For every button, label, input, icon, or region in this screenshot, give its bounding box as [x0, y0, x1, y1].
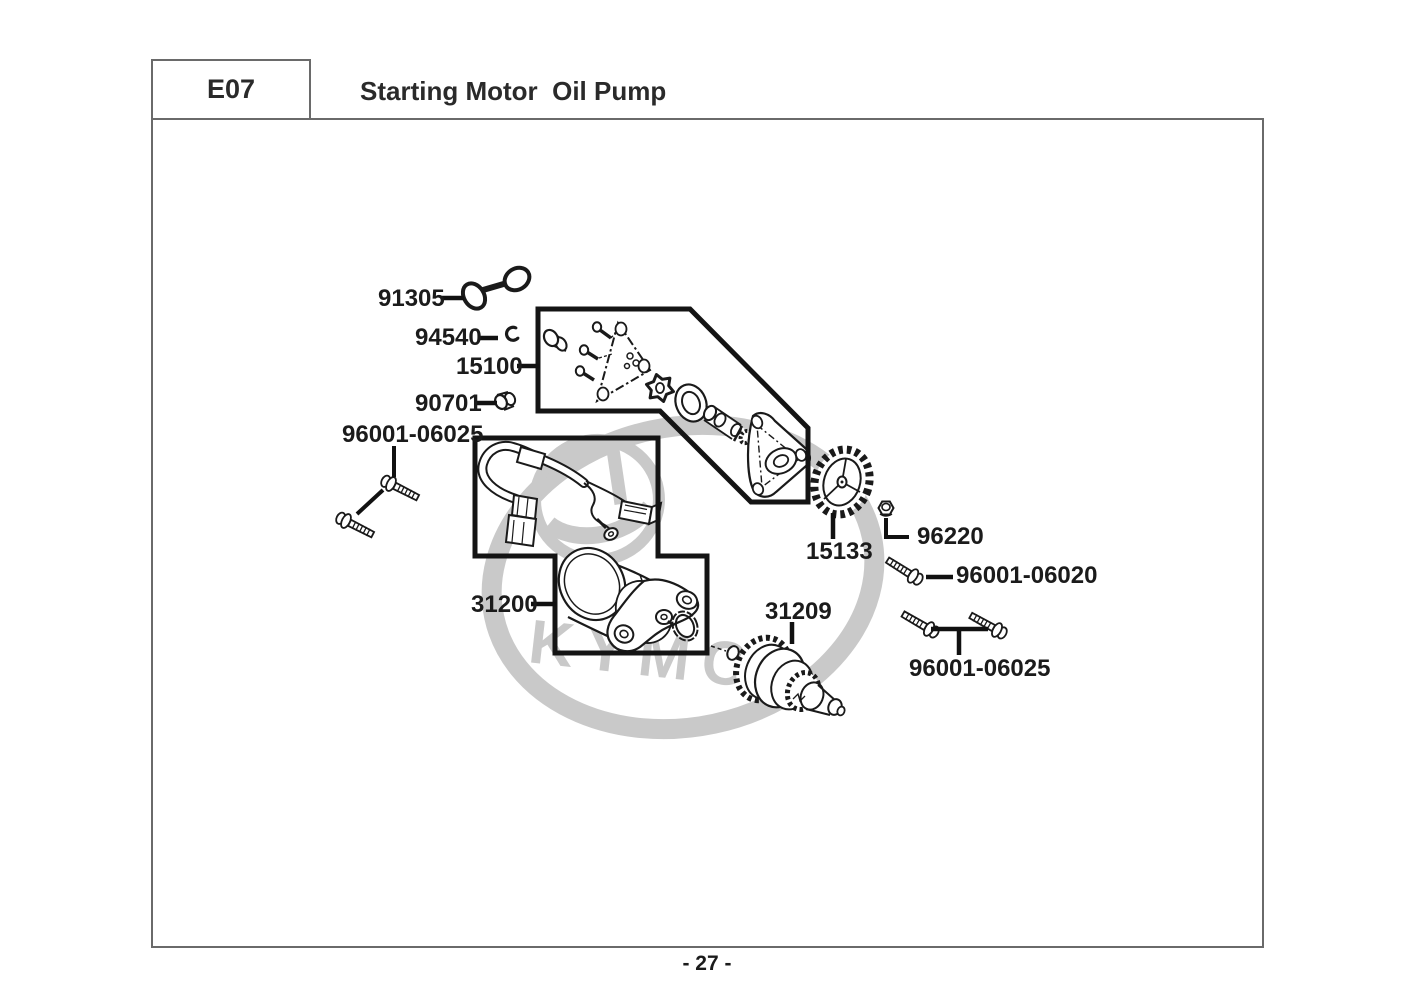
page-number: - 27 -	[627, 952, 787, 976]
part-label-31200: 31200	[471, 593, 538, 617]
catalog-page: KYMCO	[0, 0, 1415, 1000]
harness-connector-stack	[506, 495, 537, 546]
page-title: Starting Motor Oil Pump	[360, 76, 666, 107]
part-label-96001-06020: 96001-06020	[956, 564, 1097, 588]
nut-drawing	[879, 502, 894, 517]
clip-drawing	[507, 327, 520, 341]
flange-bolt-drawing	[884, 554, 926, 588]
part-label-15100: 15100	[456, 355, 523, 379]
content-border	[152, 119, 1263, 947]
section-code: E07	[152, 60, 310, 119]
diagram-canvas: KYMCO	[0, 0, 1415, 1000]
pump-body	[748, 413, 810, 497]
part-label-94540: 94540	[415, 326, 482, 350]
part-label-91305: 91305	[378, 287, 445, 311]
part-label-96001-06025-left: 96001-06025	[342, 423, 483, 447]
flange-bolts-drawing-right	[899, 608, 1009, 642]
part-label-15133: 15133	[806, 540, 873, 564]
part-label-31209: 31209	[765, 600, 832, 624]
part-label-96220: 96220	[917, 525, 984, 549]
leader-96001-06025-right	[931, 629, 988, 655]
mount-bolts-drawing-left	[334, 473, 421, 542]
part-label-90701: 90701	[415, 392, 482, 416]
leader-96220	[886, 518, 909, 537]
part-label-96001-06025-right: 96001-06025	[909, 657, 1050, 681]
oring-set-drawing	[458, 263, 533, 313]
pump-bolts	[576, 322, 618, 380]
